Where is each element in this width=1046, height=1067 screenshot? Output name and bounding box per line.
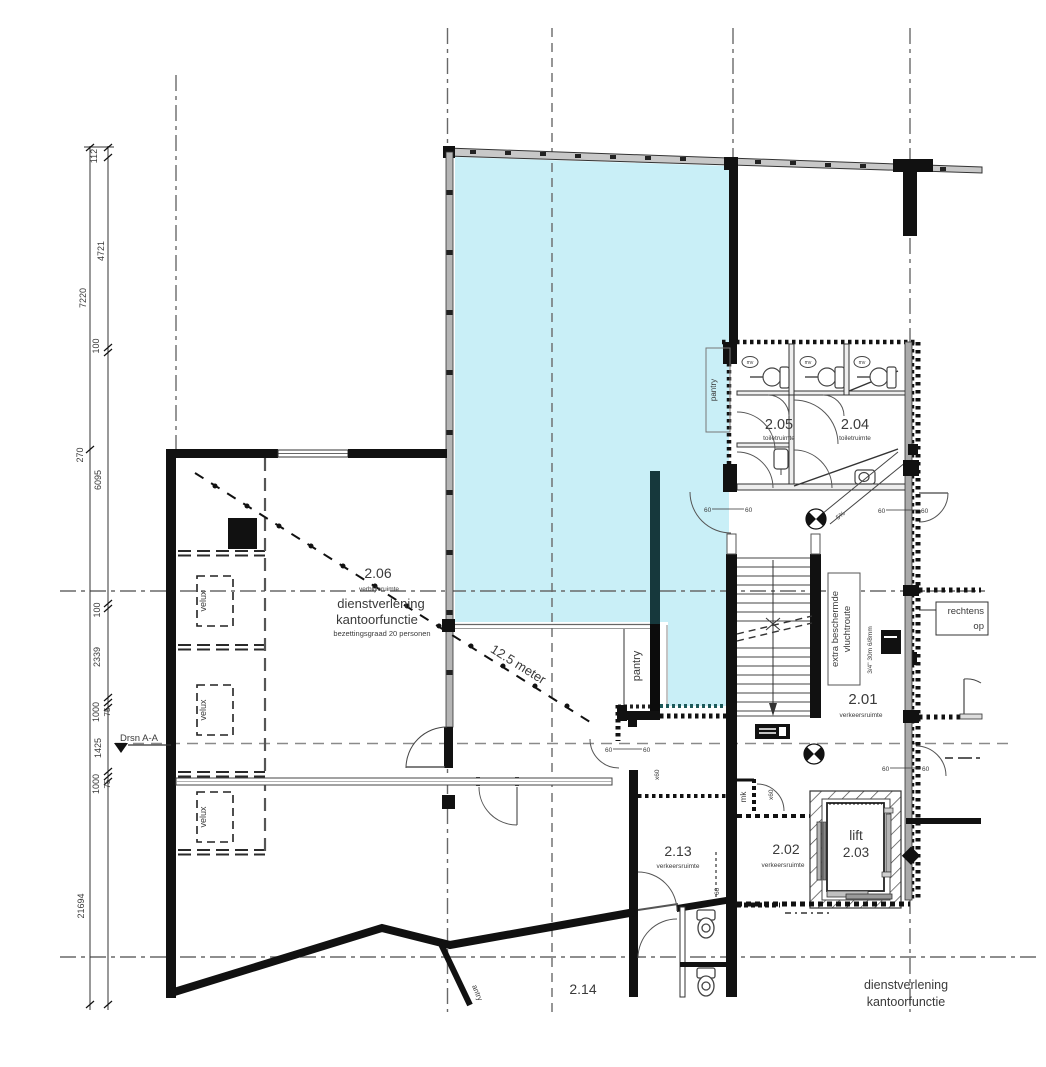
svg-text:velux: velux (198, 590, 208, 612)
svg-text:60: 60 (704, 507, 712, 514)
svg-text:100: 100 (91, 338, 101, 353)
svg-text:mv: mv (859, 360, 866, 366)
svg-text:pantry: pantry (631, 650, 643, 681)
svg-text:x60: x60 (768, 789, 775, 800)
svg-text:toiletruimte: toiletruimte (763, 435, 795, 442)
svg-text:vluchtroute: vluchtroute (842, 606, 853, 652)
svg-text:dienstverlening: dienstverlening (337, 596, 424, 611)
svg-text:2.02: 2.02 (772, 841, 799, 857)
svg-text:60: 60 (643, 747, 651, 754)
svg-text:verkeersruimte: verkeersruimte (762, 862, 805, 869)
svg-text:2339: 2339 (92, 647, 102, 667)
svg-text:kantoorfunctie: kantoorfunctie (867, 995, 946, 1009)
svg-text:60: 60 (714, 887, 721, 895)
svg-text:60: 60 (878, 508, 886, 515)
svg-text:kantoorfunctie: kantoorfunctie (336, 612, 418, 627)
svg-text:x60: x60 (654, 769, 661, 780)
svg-text:3/4" 30m 6/8mm: 3/4" 30m 6/8mm (867, 626, 874, 673)
svg-text:verblijfsruimte: verblijfsruimte (359, 586, 399, 593)
svg-text:112: 112 (89, 149, 99, 163)
svg-text:21694: 21694 (76, 893, 86, 918)
svg-text:rechtens: rechtens (948, 606, 985, 617)
svg-text:6095: 6095 (93, 470, 103, 490)
svg-text:verkeersruimte: verkeersruimte (657, 863, 700, 870)
svg-text:2.05: 2.05 (765, 417, 793, 433)
svg-text:2.14: 2.14 (569, 981, 596, 997)
svg-text:toiletruimte: toiletruimte (839, 435, 871, 442)
svg-text:mv: mv (805, 360, 812, 366)
svg-text:1000: 1000 (91, 702, 101, 722)
svg-text:extra beschermde: extra beschermde (830, 591, 841, 667)
svg-text:verkeersruimte: verkeersruimte (840, 712, 883, 719)
svg-text:mv: mv (747, 360, 754, 366)
svg-text:2.03: 2.03 (843, 845, 869, 860)
svg-text:2.13: 2.13 (664, 843, 691, 859)
svg-text:1000: 1000 (91, 774, 101, 794)
svg-text:dienstverlening: dienstverlening (864, 978, 948, 992)
svg-text:2.01: 2.01 (848, 691, 877, 708)
svg-text:75: 75 (103, 707, 112, 716)
svg-text:bezettingsgraad 20 personen: bezettingsgraad 20 personen (333, 629, 430, 638)
svg-text:60: 60 (745, 507, 753, 514)
svg-text:100: 100 (92, 602, 102, 617)
svg-text:1425: 1425 (93, 738, 103, 758)
svg-text:7220: 7220 (78, 288, 88, 308)
svg-text:4721: 4721 (96, 241, 106, 261)
svg-text:lift: lift (849, 828, 863, 843)
svg-text:velux: velux (198, 806, 208, 828)
svg-text:pantry: pantry (709, 379, 718, 401)
svg-text:velux: velux (198, 699, 208, 721)
svg-text:2.04: 2.04 (841, 417, 869, 433)
svg-text:op: op (973, 621, 984, 632)
svg-text:Drsn A-A: Drsn A-A (120, 733, 159, 744)
svg-text:2.06: 2.06 (364, 565, 391, 581)
svg-text:60: 60 (922, 766, 930, 773)
svg-text:60: 60 (882, 766, 890, 773)
svg-text:75: 75 (103, 779, 112, 788)
svg-text:270: 270 (75, 447, 85, 462)
svg-text:60: 60 (605, 747, 613, 754)
svg-text:mk: mk (739, 791, 748, 803)
svg-text:60: 60 (921, 508, 929, 515)
